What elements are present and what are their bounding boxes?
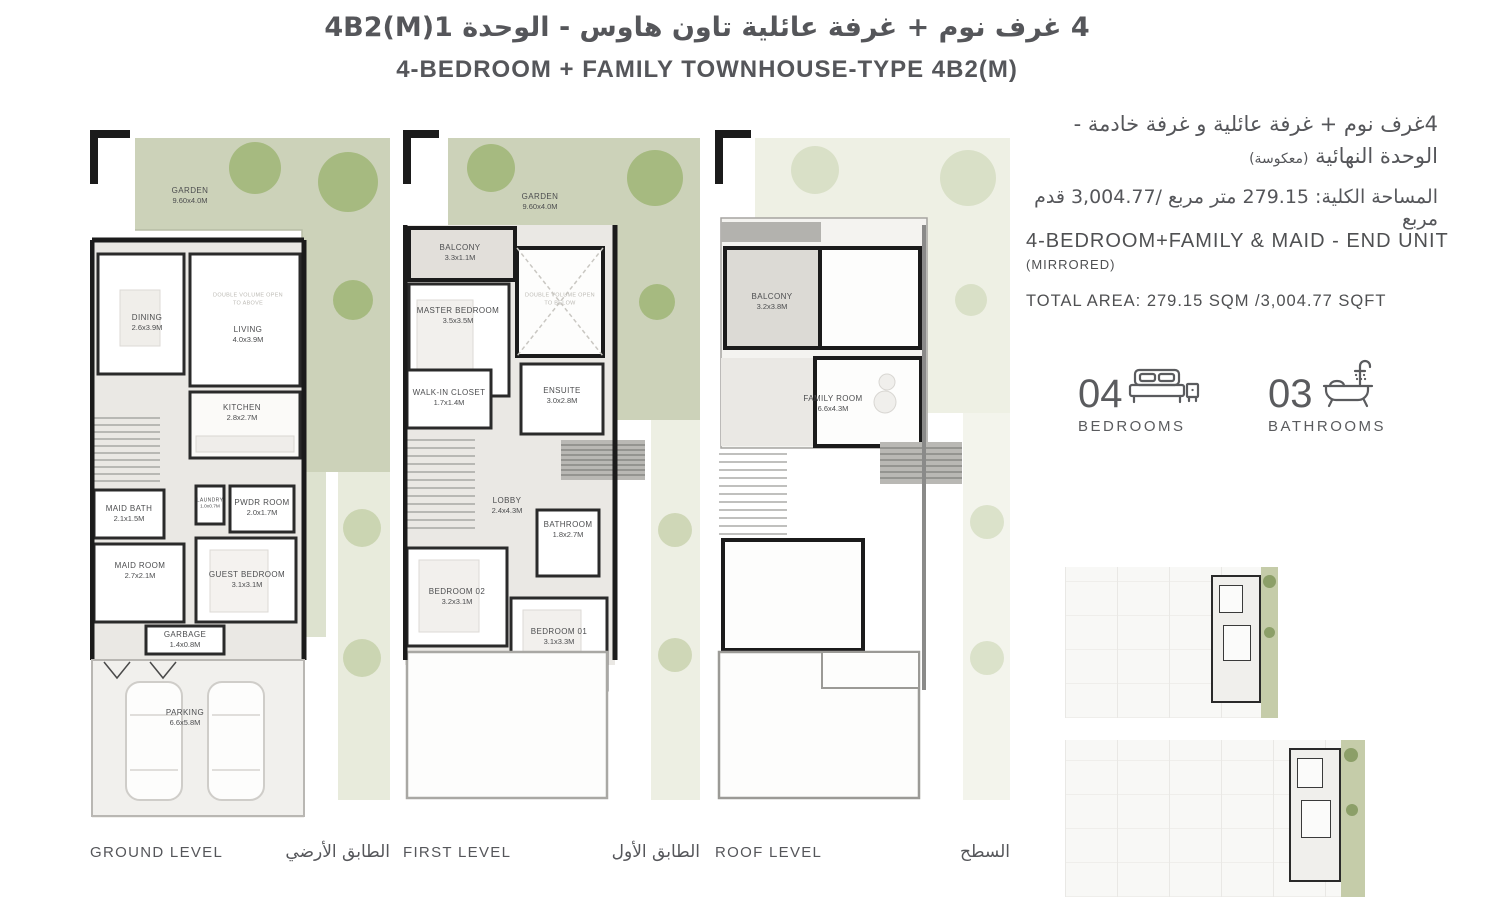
bathrooms-label: BATHROOMS	[1268, 418, 1386, 435]
total-area-english: TOTAL AREA: 279.15 SQM /3,004.77 SQFT	[1026, 292, 1386, 311]
room-label-maid-room: MAID ROOM2.7x2.1M	[115, 561, 166, 581]
room-label-living: LIVING4.0x3.9M	[233, 325, 264, 345]
bed-icon	[1128, 368, 1200, 412]
bedrooms-label: BEDROOMS	[1078, 418, 1186, 435]
caption-first-en: FIRST LEVEL	[403, 844, 511, 861]
caption-ground-level: GROUND LEVEL الطابق الأرضي	[90, 842, 390, 862]
description-arabic-line1: 4غرف نوم + غرفة عائلية و غرفة خادمة -	[1026, 112, 1438, 136]
highlighted-unit	[1289, 748, 1341, 882]
room-label-walk-in-closet: WALK-IN CLOSET1.7x1.4M	[413, 388, 486, 408]
caption-ground-ar: الطابق الأرضي	[285, 842, 390, 862]
room-label-laundry: LAUNDRY1.0x0.7M	[197, 498, 224, 511]
page-title-arabic: 4 غرف نوم + غرفة عائلية تاون هاوس - الوح…	[0, 12, 1414, 43]
siteplan-thumbnail-1	[1065, 567, 1278, 718]
room-label-bedroom-01: BEDROOM 013.1x3.3M	[531, 627, 587, 647]
bathtub-icon	[1320, 358, 1376, 412]
room-label-guest-bedroom: GUEST BEDROOM3.1x3.1M	[209, 570, 285, 590]
highlighted-unit	[1211, 575, 1261, 703]
garden-strip	[1341, 740, 1365, 897]
room-label-garden-first: GARDEN9.60x4.0M	[522, 192, 559, 212]
room-label-dining: DINING2.6x3.9M	[132, 313, 163, 333]
floorplan-brochure-page: 4 غرف نوم + غرفة عائلية تاون هاوس - الوح…	[0, 0, 1500, 900]
garden-strip	[1261, 567, 1278, 718]
room-label-kitchen: KITCHEN2.8x2.7M	[223, 403, 261, 423]
room-label-balcony-first: BALCONY3.3x1.1M	[439, 243, 480, 263]
room-label-pwdr-room: PWDR ROOM2.0x1.7M	[234, 498, 289, 518]
ground-level-drawing	[90, 130, 390, 820]
caption-first-level: FIRST LEVEL الطابق الأول	[403, 842, 700, 862]
first-level-drawing	[403, 130, 700, 820]
floor-plan-roof-level: BALCONY3.2x3.8M FAMILY ROOM6.6x4.3M	[715, 130, 1010, 820]
mirrored-note-arabic: (معكوسة)	[1249, 151, 1308, 167]
siteplan-thumbnail-2	[1065, 740, 1365, 897]
description-arabic-line2: الوحدة النهائية (معكوسة)	[1026, 144, 1438, 168]
double-volume-note-ground: DOUBLE VOLUME OPEN TO ABOVE	[212, 292, 284, 307]
caption-roof-ar: السطح	[960, 842, 1010, 862]
room-label-family-room: FAMILY ROOM6.6x4.3M	[803, 394, 862, 414]
room-label-parking: PARKING6.6x5.8M	[166, 708, 204, 728]
total-area-arabic: المساحة الكلية: 279.15 متر مربع /3,004.7…	[1026, 186, 1438, 230]
roof-level-drawing	[715, 130, 1010, 820]
room-label-lobby: LOBBY2.4x4.3M	[492, 496, 523, 516]
unit-type-heading: 4-BEDROOM+FAMILY & MAID - END UNIT	[1026, 230, 1466, 253]
room-label-maid-bath: MAID BATH2.1x1.5M	[106, 504, 153, 524]
page-title-english: 4-BEDROOM + FAMILY TOWNHOUSE-TYPE 4B2(M)	[0, 56, 1414, 84]
floor-plan-ground-level: GARDEN9.60x4.0M DINING2.6x3.9M DOUBLE VO…	[90, 130, 390, 820]
room-label-balcony-roof: BALCONY3.2x3.8M	[751, 292, 792, 312]
caption-roof-en: ROOF LEVEL	[715, 844, 822, 861]
room-label-ensuite: ENSUITE3.0x2.8M	[543, 386, 580, 406]
caption-roof-level: ROOF LEVEL السطح	[715, 842, 1010, 862]
mirrored-note: (MIRRORED)	[1026, 257, 1115, 272]
room-label-bathroom: BATHROOM1.8x2.7M	[544, 520, 593, 540]
caption-first-ar: الطابق الأول	[612, 842, 700, 862]
bedrooms-count: 04	[1078, 372, 1123, 417]
room-label-garbage: GARBAGE1.4x0.8M	[164, 630, 206, 650]
double-volume-note-first: DOUBLE VOLUME OPEN TO BELOW	[524, 292, 596, 307]
room-label-master-bedroom: MASTER BEDROOM3.5x3.5M	[417, 306, 500, 326]
bathrooms-count: 03	[1268, 372, 1313, 417]
room-label-garden: GARDEN9.60x4.0M	[172, 186, 209, 206]
caption-ground-en: GROUND LEVEL	[90, 844, 223, 861]
floor-plan-first-level: GARDEN9.60x4.0M BALCONY3.3x1.1M MASTER B…	[403, 130, 700, 820]
room-label-bedroom-02: BEDROOM 023.2x3.1M	[429, 587, 485, 607]
